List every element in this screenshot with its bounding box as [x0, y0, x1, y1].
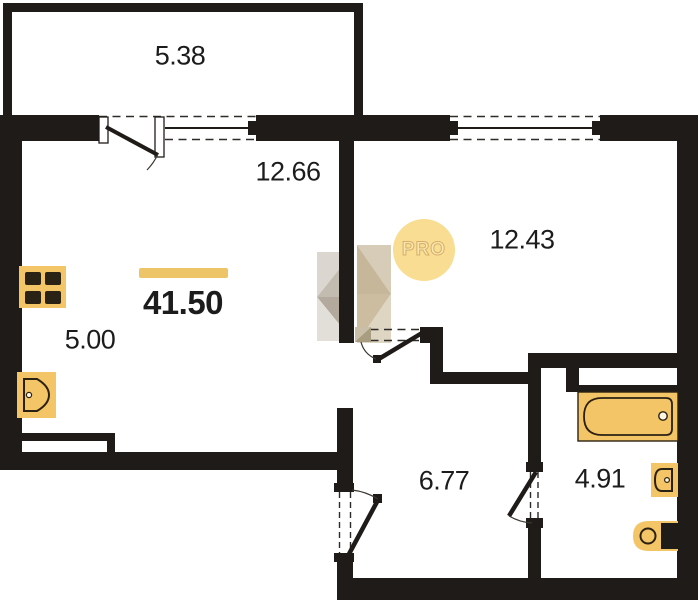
floor-plan-drawing: [0, 0, 699, 600]
balcony-door-leaf: [106, 127, 158, 155]
wall-bathroom-top: [528, 353, 680, 368]
wall-bottom-left: [0, 452, 353, 470]
hall-area-label: 6.77: [419, 466, 470, 497]
toilet-tank: [661, 523, 678, 549]
living-window: [165, 121, 257, 140]
balcony-wall-left: [3, 3, 12, 117]
bathroom-area-label: 4.91: [575, 464, 626, 495]
total-area-accent-bar: [139, 268, 228, 278]
wall-niche-bar: [12, 433, 115, 441]
walls: [0, 115, 698, 600]
wall-right: [677, 115, 698, 600]
washbasin-icon: [651, 463, 678, 497]
wall-bedroom-door-post: [420, 327, 443, 343]
wall-bath-hall-lower: [528, 528, 541, 578]
floor-plan: 5.38 12.66 12.43 5.00 6.77 4.91 41.50 PR…: [0, 0, 699, 600]
entrance-door-leaf: [349, 500, 378, 554]
bedroom-window: [448, 117, 602, 140]
bathroom-door-leaf: [509, 472, 536, 516]
balcony-wall-right: [354, 3, 363, 117]
total-area-label: 41.50: [143, 284, 223, 322]
kitchen-sink-icon: [17, 372, 56, 418]
wall-duct-line: [579, 385, 678, 392]
door-jamb-right: [155, 117, 164, 157]
wall-niche-connector: [107, 433, 115, 452]
balcony-wall-top: [3, 3, 363, 12]
wall-nook-vertical: [430, 343, 443, 384]
entrance-door-cap-top: [334, 483, 354, 492]
bathroom-door: [509, 472, 538, 523]
window-end-cap: [448, 121, 458, 135]
wall-hall-left-upper: [337, 408, 353, 483]
balcony-door: [99, 117, 256, 171]
door-leaf-cap: [373, 355, 381, 363]
wall-nook-horizontal: [443, 372, 530, 384]
wall-living-right: [339, 141, 354, 343]
wall-bottom: [337, 578, 698, 600]
wall-hall-left-lower: [337, 562, 353, 578]
toilet-icon: [633, 521, 678, 551]
wall-duct-stub: [566, 368, 579, 392]
bathtub-drain: [659, 412, 667, 420]
pro-badge: PRO: [393, 219, 455, 281]
bedroom-area-label: 12.43: [489, 225, 554, 256]
bathtub-icon: [578, 392, 678, 441]
entrance-door: [340, 490, 383, 554]
window-end-cap: [592, 121, 602, 135]
living-area-label: 12.66: [255, 157, 320, 188]
bath-door-cap-top: [526, 462, 543, 472]
balcony-door-arc: [147, 154, 158, 170]
kitchen-area-label: 5.00: [65, 325, 116, 356]
balcony-area-label: 5.38: [155, 41, 206, 72]
door-jamb-left: [99, 117, 108, 143]
window-end-cap: [248, 121, 257, 135]
stove-icon: [19, 266, 66, 308]
wall-top-middle: [256, 115, 450, 141]
wall-bath-hall-upper: [528, 357, 541, 462]
